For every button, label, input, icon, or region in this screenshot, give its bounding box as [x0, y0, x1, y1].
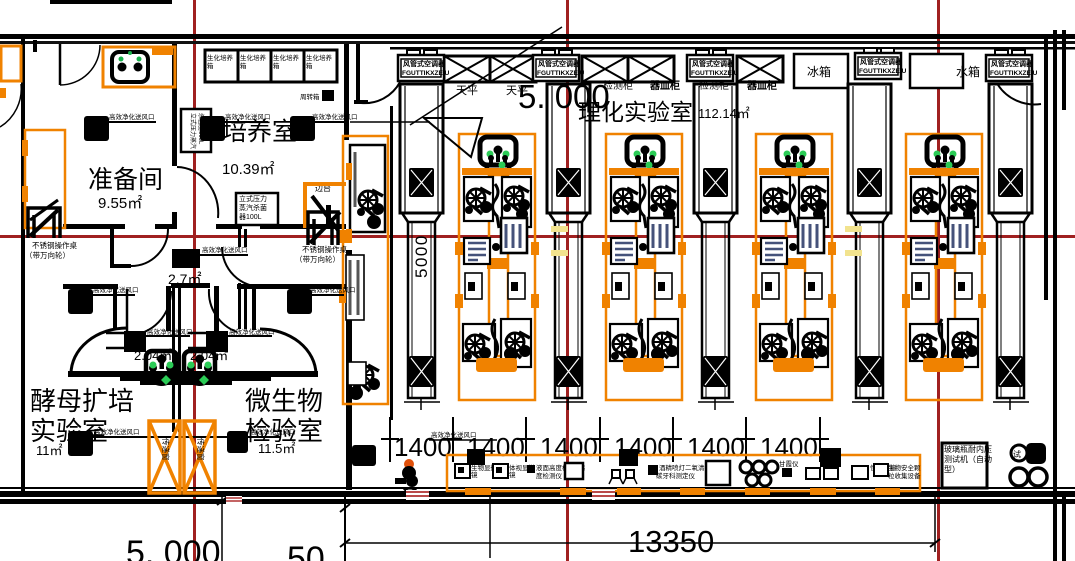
svg-text:1400: 1400	[394, 432, 452, 462]
svg-text:器皿柜: 器皿柜	[746, 79, 777, 92]
svg-text:高效净化送风口: 高效净化送风口	[202, 245, 248, 254]
svg-text:准备间: 准备间	[88, 166, 163, 194]
svg-text:1400: 1400	[687, 432, 745, 462]
svg-text:天平: 天平	[456, 85, 478, 97]
svg-text:立式压力: 立式压力	[239, 194, 267, 203]
svg-text:5000: 5000	[412, 234, 431, 278]
svg-text:酵母扩培: 酵母扩培	[30, 386, 134, 416]
svg-text:高效净化送风口: 高效净化送风口	[93, 285, 139, 294]
svg-text:高效净化送风口: 高效净化送风口	[310, 285, 356, 294]
svg-text:培养室: 培养室	[222, 118, 297, 146]
svg-text:玻璃瓶耐内压: 玻璃瓶耐内压	[944, 444, 992, 454]
svg-text:9.55㎡: 9.55㎡	[98, 195, 142, 212]
svg-text:器100L: 器100L	[239, 213, 262, 221]
svg-text:传递窗: 传递窗	[196, 438, 206, 461]
svg-text:水箱: 水箱	[956, 64, 980, 79]
svg-text:镜: 镜	[471, 470, 478, 479]
svg-text:50: 50	[287, 540, 325, 561]
svg-text:不锈钢操作桌: 不锈钢操作桌	[32, 240, 77, 250]
svg-text:生物安全颗: 生物安全颗	[888, 463, 921, 472]
svg-text:5. 000: 5. 000	[126, 534, 221, 561]
svg-text:（带万向轮）: （带万向轮）	[25, 250, 70, 260]
svg-text:1400: 1400	[540, 432, 598, 462]
svg-text:微生物: 微生物	[245, 386, 323, 416]
svg-text:检测柜: 检测柜	[699, 79, 729, 92]
svg-text:箱: 箱	[207, 61, 214, 70]
svg-text:11.5㎡: 11.5㎡	[258, 441, 295, 456]
svg-text:13350: 13350	[628, 524, 714, 559]
svg-text:112.14㎡: 112.14㎡	[698, 106, 750, 121]
svg-text:理化实验室: 理化实验室	[578, 99, 693, 125]
svg-text:生化培养: 生化培养	[306, 53, 333, 62]
svg-text:型）: 型）	[944, 465, 960, 474]
svg-text:生化培养: 生化培养	[207, 53, 234, 62]
svg-text:高效净化送风口: 高效净化送风口	[109, 112, 155, 121]
svg-text:蒸汽杀菌: 蒸汽杀菌	[239, 203, 267, 212]
svg-text:粒收集设备: 粒收集设备	[888, 471, 921, 480]
svg-text:11㎡: 11㎡	[36, 443, 63, 458]
svg-text:2.7㎡: 2.7㎡	[168, 271, 201, 287]
svg-text:周转箱: 周转箱	[300, 92, 320, 101]
svg-text:生化培养: 生化培养	[240, 53, 267, 62]
svg-text:高效净化送风口: 高效净化送风口	[229, 327, 275, 336]
svg-text:高效净化送风口: 高效净化送风口	[94, 427, 140, 436]
svg-text:试: 试	[1013, 449, 1021, 459]
svg-text:度检测仪: 度检测仪	[536, 471, 563, 480]
svg-text:（带万向轮）: （带万向轮）	[295, 254, 340, 264]
svg-text:冰箱: 冰箱	[807, 64, 831, 79]
svg-text:镜: 镜	[509, 470, 516, 479]
svg-text:10.39㎡: 10.39㎡	[222, 161, 275, 178]
svg-text:高效净化送风口: 高效净化送风口	[312, 112, 358, 121]
svg-text:不锈钢操作桌: 不锈钢操作桌	[302, 244, 347, 254]
svg-text:甘霞仪: 甘霞仪	[779, 459, 799, 468]
svg-text:高效净化送风口: 高效净化送风口	[147, 327, 193, 336]
svg-text:传递窗: 传递窗	[161, 438, 171, 461]
svg-text:高效净化送风口: 高效净化送风口	[250, 427, 296, 436]
svg-text:立式压力蒸汽: 立式压力蒸汽	[189, 113, 197, 149]
svg-text:箱: 箱	[273, 61, 280, 70]
svg-text:箱: 箱	[306, 61, 313, 70]
svg-text:生化培养: 生化培养	[273, 53, 300, 62]
svg-text:1400: 1400	[760, 432, 818, 462]
svg-text:箱: 箱	[240, 61, 247, 70]
svg-text:碳牙科测定仪: 碳牙科测定仪	[656, 471, 696, 480]
svg-text:器皿柜: 器皿柜	[649, 79, 680, 92]
svg-text:测试机（自动: 测试机（自动	[944, 454, 992, 464]
